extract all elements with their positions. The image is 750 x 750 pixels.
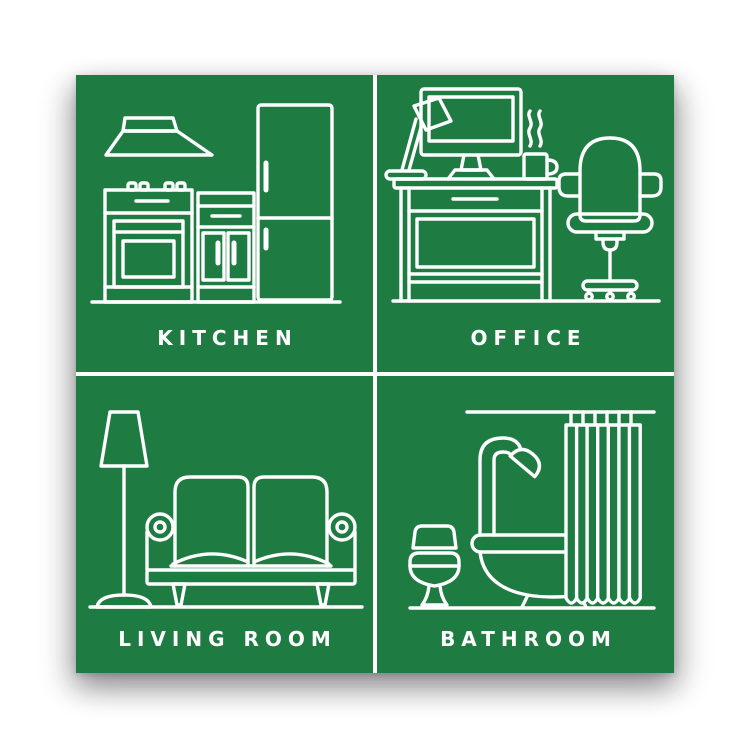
refrigerator-icon	[258, 105, 332, 300]
sofa-icon	[147, 477, 355, 605]
panel-kitchen: KITCHEN	[76, 75, 373, 372]
monitor-icon	[421, 89, 521, 179]
floor-lamp-icon	[97, 412, 151, 607]
poster-page: KITCHEN	[0, 0, 750, 750]
desk-icon	[394, 179, 557, 301]
office-label: OFFICE	[377, 326, 674, 350]
kitchen-label: KITCHEN	[76, 326, 373, 350]
shower-head-icon	[480, 438, 545, 535]
office-illustration	[377, 75, 674, 315]
panel-living-room: LIVING ROOM	[76, 376, 373, 673]
kitchen-illustration	[76, 75, 373, 315]
bathroom-label: BATHROOM	[377, 627, 674, 651]
mug-icon	[524, 111, 557, 179]
range-hood-icon	[106, 118, 212, 155]
office-chair-icon	[559, 138, 661, 300]
room-poster-card: KITCHEN	[76, 75, 674, 673]
stove-oven-icon	[105, 183, 192, 302]
panel-bathroom: BATHROOM	[377, 376, 674, 673]
cabinet-icon	[198, 193, 254, 302]
bathroom-illustration	[377, 376, 674, 616]
living-room-illustration	[76, 376, 373, 616]
living-room-label: LIVING ROOM	[76, 627, 373, 651]
toilet-icon	[410, 526, 459, 605]
desk-lamp-icon	[386, 98, 451, 179]
panel-office: OFFICE	[377, 75, 674, 372]
